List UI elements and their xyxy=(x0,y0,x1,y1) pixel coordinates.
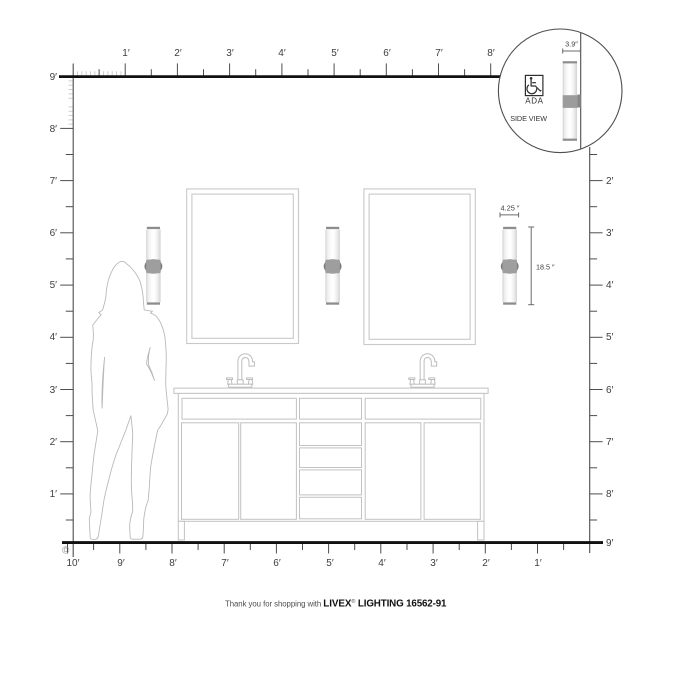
svg-text:7′: 7′ xyxy=(221,558,229,569)
svg-text:SIDE VIEW: SIDE VIEW xyxy=(510,114,547,123)
svg-text:1′: 1′ xyxy=(122,48,130,59)
svg-text:3.9″: 3.9″ xyxy=(565,40,578,49)
svg-text:1′: 1′ xyxy=(534,558,542,569)
svg-text:8′: 8′ xyxy=(50,124,58,135)
svg-text:2′: 2′ xyxy=(174,48,182,59)
svg-text:©: © xyxy=(62,546,70,557)
svg-text:6′: 6′ xyxy=(383,48,391,59)
svg-text:2′: 2′ xyxy=(482,558,490,569)
svg-text:4′: 4′ xyxy=(50,332,58,343)
svg-text:6′: 6′ xyxy=(50,228,58,239)
svg-text:ADA: ADA xyxy=(525,96,543,105)
svg-text:5′: 5′ xyxy=(606,332,614,343)
svg-text:7′: 7′ xyxy=(435,48,443,59)
svg-text:5′: 5′ xyxy=(50,280,58,291)
svg-text:2′: 2′ xyxy=(50,437,58,448)
svg-text:6′: 6′ xyxy=(606,385,614,396)
svg-text:7′: 7′ xyxy=(606,437,614,448)
svg-text:6′: 6′ xyxy=(273,558,281,569)
svg-text:4′: 4′ xyxy=(606,280,614,291)
svg-text:3′: 3′ xyxy=(606,228,614,239)
svg-text:10′: 10′ xyxy=(67,558,80,569)
svg-text:3′: 3′ xyxy=(50,385,58,396)
svg-text:3′: 3′ xyxy=(430,558,438,569)
svg-text:7′: 7′ xyxy=(50,176,58,187)
svg-text:4′: 4′ xyxy=(278,48,286,59)
svg-text:8′: 8′ xyxy=(487,48,495,59)
svg-text:3′: 3′ xyxy=(226,48,234,59)
svg-text:9′: 9′ xyxy=(117,558,125,569)
svg-text:5′: 5′ xyxy=(331,48,339,59)
svg-text:2′: 2′ xyxy=(606,176,614,187)
svg-text:18.5 ″: 18.5 ″ xyxy=(536,263,555,272)
svg-text:4.25 ″: 4.25 ″ xyxy=(500,204,519,213)
svg-text:4′: 4′ xyxy=(378,558,386,569)
svg-text:9′: 9′ xyxy=(50,72,58,83)
svg-text:9′: 9′ xyxy=(606,538,614,549)
svg-text:Thank you for shopping with LI: Thank you for shopping with LIVEX® LIGHT… xyxy=(225,598,447,610)
svg-text:5′: 5′ xyxy=(326,558,334,569)
svg-text:8′: 8′ xyxy=(169,558,177,569)
svg-text:1′: 1′ xyxy=(50,489,58,500)
svg-text:8′: 8′ xyxy=(606,489,614,500)
